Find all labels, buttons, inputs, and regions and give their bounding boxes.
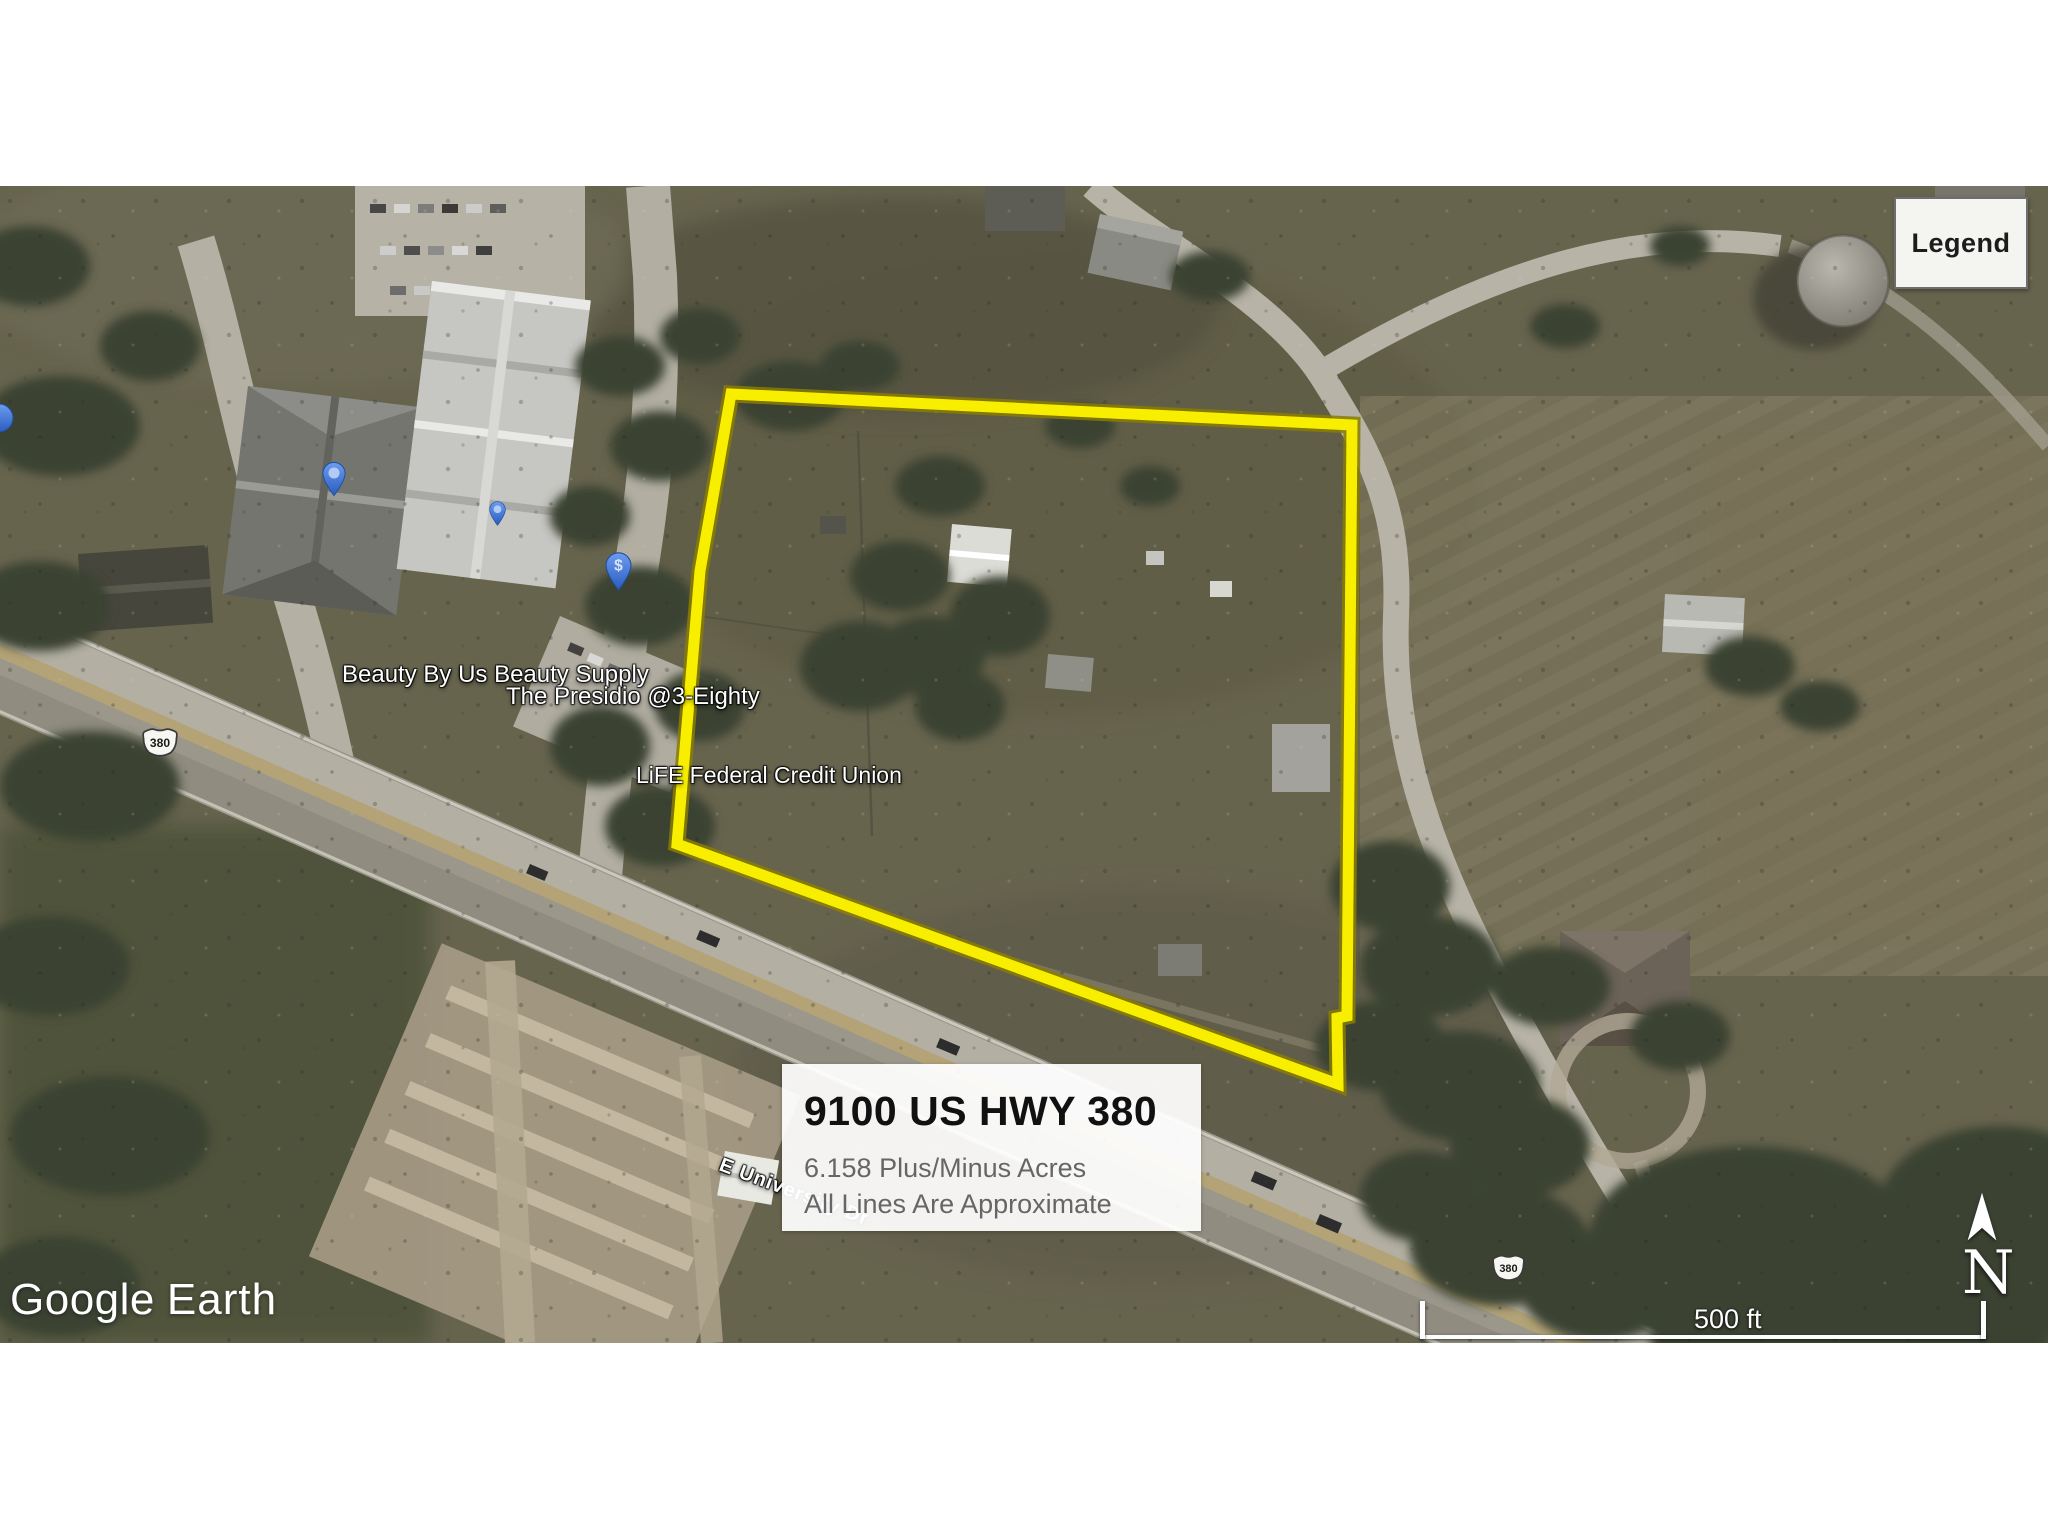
scale-bar-left-tick [1420,1301,1425,1339]
north-label: N [1962,1238,2006,1308]
map-pin-presidio[interactable] [489,500,506,527]
place-label-presidio: The Presidio @3-Eighty [506,683,760,711]
route-shield-380-east: 380 [1490,1252,1527,1282]
earth-logo-text: Earth [167,1275,277,1324]
svg-text:380: 380 [1499,1263,1517,1275]
map-pin-credit-union-dollar[interactable]: $ [605,551,632,592]
dollar-glyph: $ [614,557,623,574]
route-shield-380-west: 380 [140,725,180,758]
scale-bar-label: 500 ft [1694,1304,1762,1335]
map-pin-edge-partial[interactable] [0,403,14,433]
property-acreage: 6.158 Plus/Minus Acres [804,1151,1201,1187]
google-logo-text: Google [10,1275,155,1324]
property-address-title: 9100 US HWY 380 [804,1088,1201,1135]
screenshot: Beauty By Us Beauty Supply The Presidio … [0,0,2048,1535]
google-earth-logo: GoogleEarth [10,1275,277,1325]
legend-button[interactable]: Legend [1894,197,2028,289]
property-info-box: 9100 US HWY 380 6.158 Plus/Minus Acres A… [782,1064,1201,1231]
map-pin-beauty-supply[interactable] [322,460,346,498]
place-label-credit-union: LiFE Federal Credit Union [636,762,902,789]
svg-text:380: 380 [150,736,170,750]
scale-bar-line [1420,1335,1986,1339]
property-disclaimer: All Lines Are Approximate [804,1187,1201,1223]
